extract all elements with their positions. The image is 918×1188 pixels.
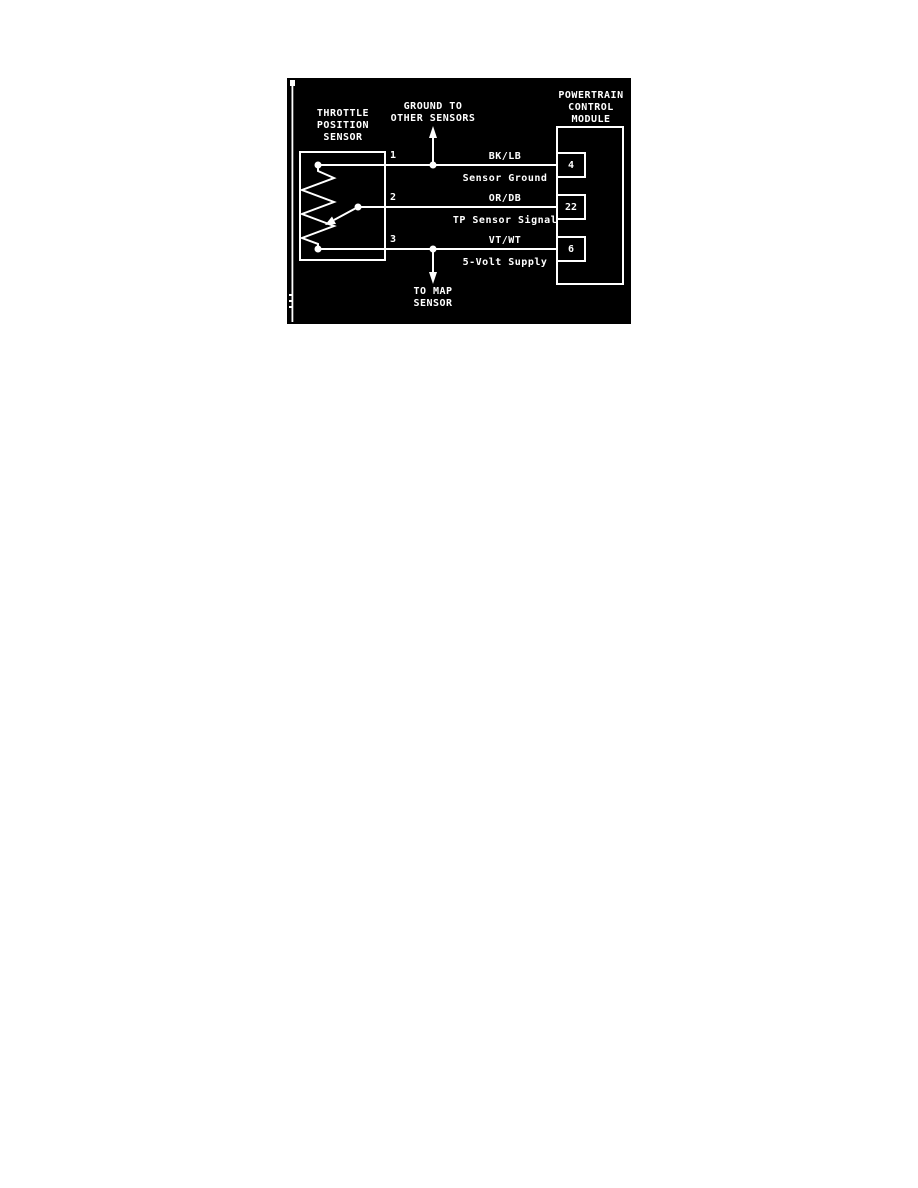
wire-label-5-volt-supply: VT/WT 5-Volt Supply [463,224,548,268]
wiper-arrowhead-icon [325,217,336,226]
tps-pin-number-3: 3 [390,234,396,245]
pcm-title: POWERTRAIN CONTROL MODULE [558,90,623,126]
down-arrow-icon [429,272,437,284]
tps-pin-number-1: 1 [390,150,396,161]
wire-label-tp-sensor-signal: OR/DB TP Sensor Signal [453,182,557,226]
scan-artifact-line [289,80,295,322]
resistor-zigzag [302,165,334,249]
map-branch-label: TO MAP SENSOR [413,286,452,310]
wiring-diagram-panel: THROTTLE POSITION SENSOR POWERTRAIN CONT… [287,78,631,324]
tps-title: THROTTLE POSITION SENSOR [317,108,369,144]
wire-color-code: BK/LB [489,151,522,162]
wire-color-code: VT/WT [489,235,522,246]
up-arrow-icon [429,126,437,138]
ground-junction-dot [430,162,437,169]
wire-color-code: OR/DB [489,193,522,204]
tps-terminal-dot-1 [315,162,322,169]
scanned-page: THROTTLE POSITION SENSOR POWERTRAIN CONT… [0,0,918,1188]
pcm-pin-number-4: 4 [557,153,585,177]
wire-signal-name: 5-Volt Supply [463,257,548,268]
map-junction-dot [430,246,437,253]
ground-branch-label: GROUND TO OTHER SENSORS [391,101,476,125]
wiper-arm [334,207,358,220]
pcm-pin-number-22: 22 [557,195,585,219]
tps-wiper-dot [355,204,362,211]
pcm-pin-number-6: 6 [557,237,585,261]
tps-terminal-dot-3 [315,246,322,253]
wire-label-sensor-ground: BK/LB Sensor Ground [463,140,548,184]
tps-pin-number-2: 2 [390,192,396,203]
